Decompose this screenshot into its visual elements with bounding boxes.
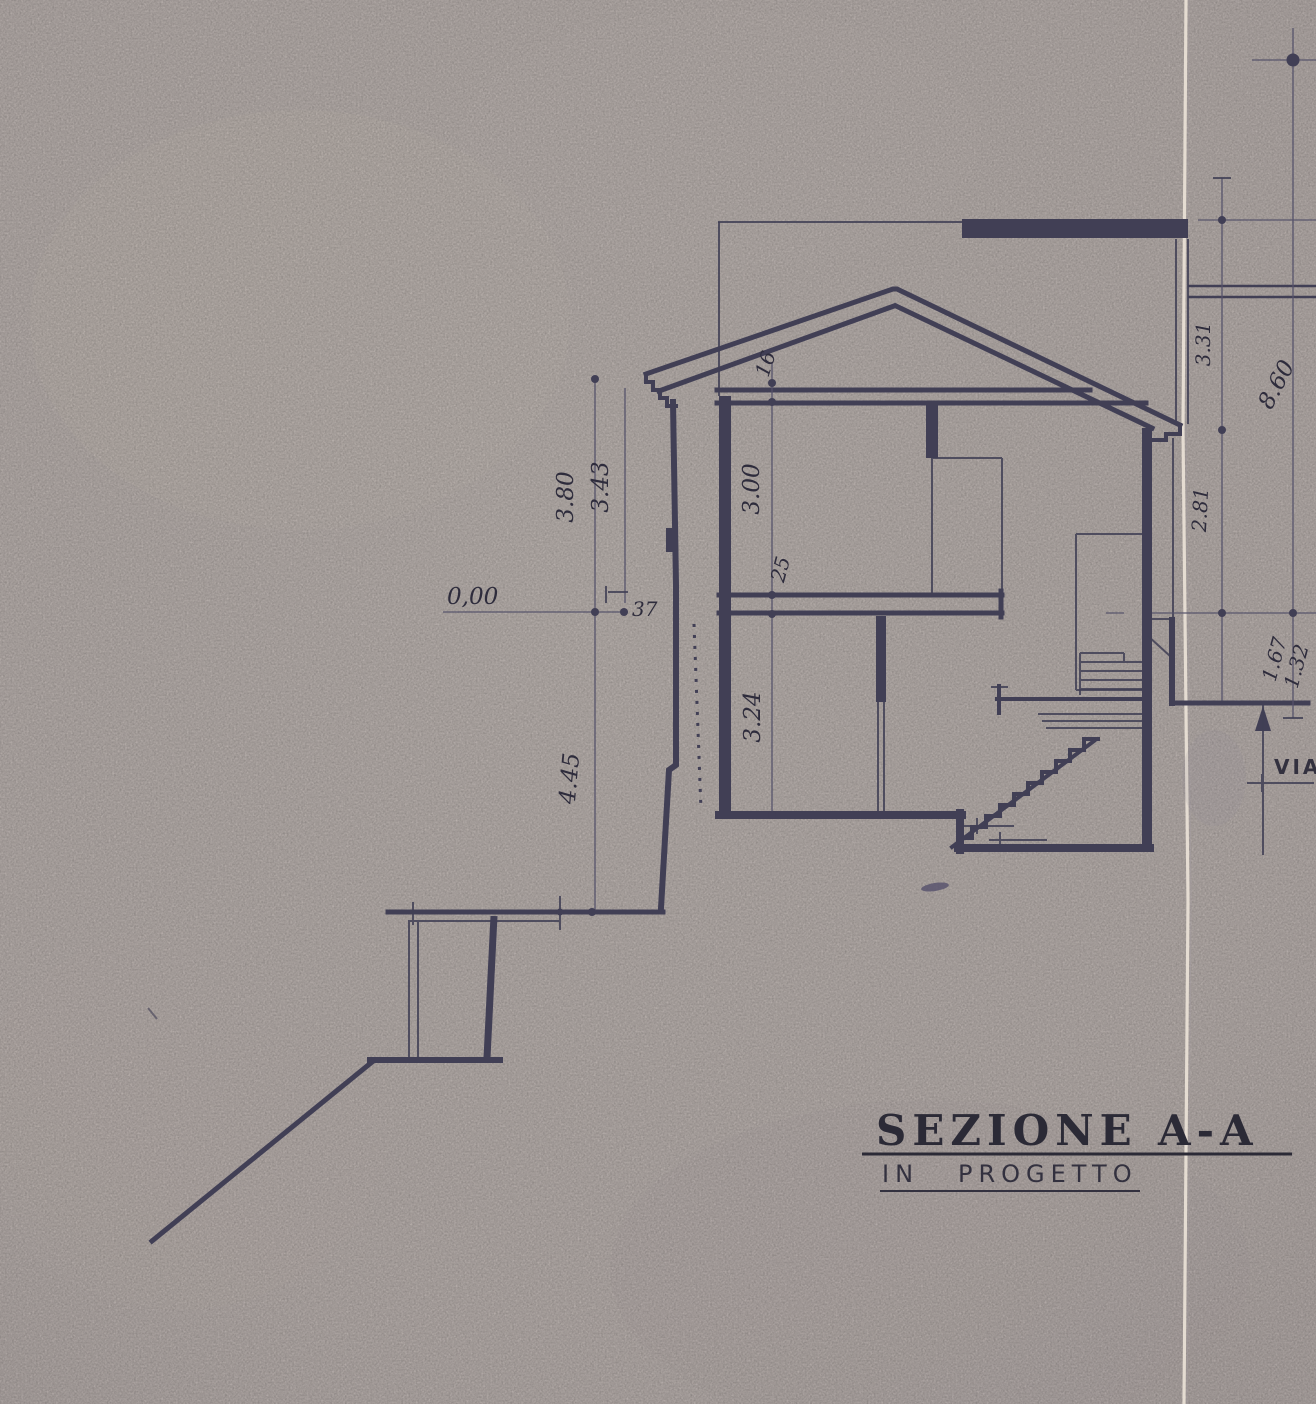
drawing-subtitle-word2: PROGETTO — [958, 1160, 1138, 1188]
dim-2-81: 2.81 — [1187, 487, 1213, 534]
dim-3-24: 3.24 — [740, 691, 766, 742]
street-label: VIA — [1274, 755, 1316, 779]
right-wall — [1142, 428, 1152, 852]
datum-label: 0,00 — [447, 584, 498, 610]
paper-background — [0, 0, 1316, 1404]
benchmark-dot — [1287, 54, 1300, 67]
drawing-sheet: 0,00 3.80 3.43 4.45 37 16 3.00 25 3.24 3… — [0, 0, 1316, 1404]
drawing-subtitle-word1: IN — [882, 1160, 919, 1188]
dim-3-43: 3.43 — [588, 461, 614, 512]
lower-partition-wall — [876, 616, 886, 702]
dim-37: 37 — [632, 597, 658, 621]
parapet-coping — [962, 219, 1188, 238]
dim-3-00: 3.00 — [739, 463, 765, 514]
left-wall — [719, 396, 731, 817]
upper-partition-wall — [926, 404, 938, 458]
drawing-title-word1: SEZIONE — [876, 1106, 1138, 1155]
dim-3-31: 3.31 — [1191, 322, 1215, 367]
drawing-title-word2: A-A — [1157, 1106, 1259, 1155]
grey-stain — [1182, 730, 1246, 826]
paper-grain — [0, 0, 1316, 1404]
dim-4-45: 4.45 — [555, 752, 585, 806]
dim-3-80: 3.80 — [553, 471, 579, 522]
wall-blip — [666, 528, 678, 552]
building-section-drawing: 0,00 3.80 3.43 4.45 37 16 3.00 25 3.24 3… — [0, 0, 1316, 1404]
